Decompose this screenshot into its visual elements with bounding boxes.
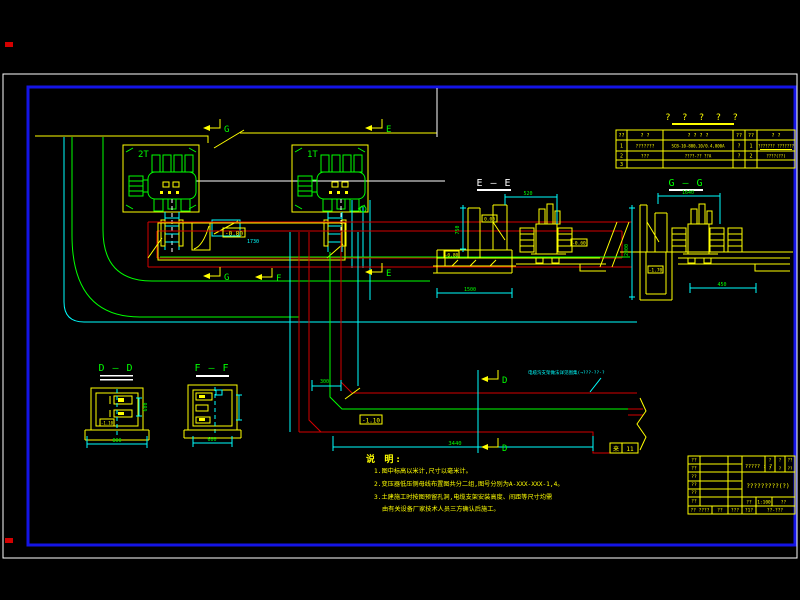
table-cell: ??????? <box>636 144 655 150</box>
title-block-cell: ?? <box>717 508 723 514</box>
plan-trench-vertical: 300 <box>290 232 637 432</box>
grid-cell: ?? <box>788 458 793 463</box>
title-block-label: ?? <box>691 474 697 480</box>
dim-1500: 1500 <box>464 287 476 293</box>
scale-value: 1:100 <box>757 500 771 506</box>
title-block-label: ?? <box>691 466 697 472</box>
table-cell: ????(??) <box>766 154 785 159</box>
dim-600: 600 <box>143 402 149 411</box>
dim-1640: 1640 <box>682 190 694 196</box>
table-cell: 1 <box>749 144 752 150</box>
grid-cell: ? <box>779 458 782 463</box>
transformer-1t-label: 1T <box>307 150 318 160</box>
dim-600: 600 <box>207 437 216 443</box>
table-header: ?? <box>618 133 624 139</box>
dim-800: 800 <box>112 438 121 444</box>
grid-cell: ?? <box>788 466 793 471</box>
cable-note: 电缆沟支架做法详见图集(→???-??-? <box>528 369 605 376</box>
table-header: ?? <box>736 133 742 139</box>
plan-cable-risers <box>161 212 346 252</box>
elevation-label: -0.80 <box>225 231 243 238</box>
parts-table-title: ? ? ? ? ? <box>665 113 741 123</box>
notes-block: 说 明: 1.图中标高以米计,尺寸以毫米计。 2.变压器低压侧母线布置图共分二组… <box>366 453 564 513</box>
title-block: ?? ?? ?? ?? ?? ?? ????? : ? ? ? ?? ? ? ?… <box>688 456 795 514</box>
section-ff-title: F — F <box>194 363 229 374</box>
title-block-label: ?? <box>691 458 697 464</box>
note-item: 3.土建施工时按图预留孔洞,电缆支架安装高度、间距等尺寸均需 <box>374 493 552 501</box>
table-cell: ? <box>737 154 740 160</box>
artifact-mark-top <box>5 42 13 47</box>
table-cell: SCB-10-800,10/0.4,800A <box>672 144 726 149</box>
dim-1730: 1730 <box>247 239 259 245</box>
section-dd-title: D — D <box>98 363 133 374</box>
elevation-label: 0.00 <box>484 217 495 223</box>
table-cell: ? <box>737 144 740 150</box>
section-ee: E — E 0.00 -0.80 520 750 1500 <box>433 178 606 298</box>
transformer-2t-label: 2T <box>138 150 149 160</box>
notes-heading: 说 明: <box>366 453 403 465</box>
title-block-label: ?? <box>691 482 697 488</box>
stamp-right: 11 <box>626 446 634 453</box>
elevation-label: -1.10 <box>362 418 380 425</box>
marker-e-mid: E <box>386 269 391 279</box>
marker-f-mid: F <box>276 274 281 284</box>
table-header: ? ? ? ? <box>687 133 708 139</box>
section-gg-title: G — G <box>668 178 703 189</box>
marker-g-mid: G <box>224 273 229 283</box>
marker-d-top: D <box>502 376 507 386</box>
grid-cell: ? <box>779 466 782 471</box>
note-item: 1.图中标高以米计,尺寸以毫米计。 <box>374 467 472 475</box>
plan-wall <box>35 88 445 181</box>
title-block-cell: ?? ???? <box>691 508 710 514</box>
table-cell: ??? <box>641 154 649 160</box>
elevation-label: -1.10 <box>101 421 114 426</box>
title-block-cell: ?1? <box>745 508 753 514</box>
table-cell: 2 <box>749 154 752 160</box>
dim-2000: 2000 <box>624 244 630 256</box>
dim-3440: 3440 <box>448 441 461 447</box>
table-cell: 3 <box>620 162 623 168</box>
section-ee-title: E — E <box>476 178 511 189</box>
table-cell: 2 <box>620 154 623 160</box>
title-block-label: ?? <box>691 499 697 505</box>
cad-drawing: 2T 1T <box>0 0 800 600</box>
table-cell: ??????? ??????? <box>758 144 795 149</box>
elevation-label: -0.80 <box>445 253 459 259</box>
marker-g-top: G <box>224 125 229 135</box>
title-block-cell: ?? <box>746 500 752 506</box>
section-ff: F — F 600 <box>184 363 242 447</box>
dim-520: 520 <box>523 191 532 197</box>
section-gg: G — G -1.70 1640 2000 450 <box>620 178 793 300</box>
title-block-cell: ?? <box>781 500 787 506</box>
table-header: ?? <box>748 133 754 139</box>
grid-cell: ? <box>769 458 772 463</box>
cad-screenshot: 2T 1T <box>0 0 800 600</box>
section-cut-markers: G E G F E D D <box>203 119 507 454</box>
section-dd: D — D 600 800 -1.10 <box>85 363 149 448</box>
drawing-title: ?????????(?) <box>746 483 789 490</box>
parts-table: ? ? ? ? ? ?? ? ? ? ? ? ? ?? ?? ? ? 1 ???… <box>616 113 795 168</box>
marker-e-top: E <box>386 125 391 135</box>
elevation-label: -0.60 <box>572 241 586 247</box>
artifact-mark-bottom <box>5 538 13 543</box>
dim-450: 450 <box>717 282 726 288</box>
drawing-number: ??-??? <box>767 508 784 514</box>
title-block-cell: ??? <box>731 508 739 514</box>
marker-d-bottom: D <box>502 444 507 454</box>
table-header: ? ? <box>771 133 780 139</box>
dim-300: 300 <box>320 379 329 385</box>
title-block-label: ?? <box>691 490 697 496</box>
table-cell: 1 <box>620 144 623 150</box>
stamp-left: 来 <box>613 446 619 453</box>
note-item: 由有关设备厂家技术人员三方确认后施工。 <box>382 505 500 513</box>
elevation-label: -1.70 <box>649 268 663 274</box>
dim-750: 750 <box>455 225 461 234</box>
table-cell: ????-?? ??A <box>685 154 712 159</box>
note-item: 2.变压器低压侧母线布置图共分二组,图号分别为A-XXX-XXX-1,4。 <box>374 480 564 488</box>
table-header: ? ? <box>640 133 649 139</box>
plan-trench-lower: 3440 -1.10 电缆沟支架做法详见图集(→???-??-? 来 11 <box>299 369 646 453</box>
